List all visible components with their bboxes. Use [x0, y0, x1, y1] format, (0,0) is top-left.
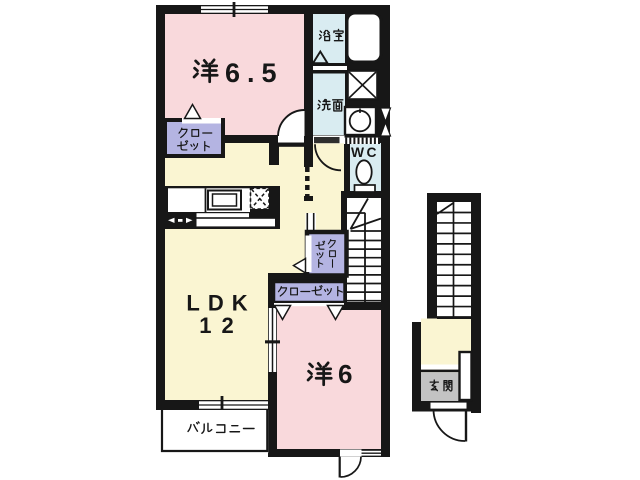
- svg-text:WC: WC: [351, 145, 379, 160]
- svg-text:6: 6: [338, 359, 352, 389]
- svg-text:6.5: 6.5: [225, 58, 284, 88]
- svg-text:LDK: LDK: [186, 291, 255, 316]
- svg-text:12: 12: [199, 313, 243, 338]
